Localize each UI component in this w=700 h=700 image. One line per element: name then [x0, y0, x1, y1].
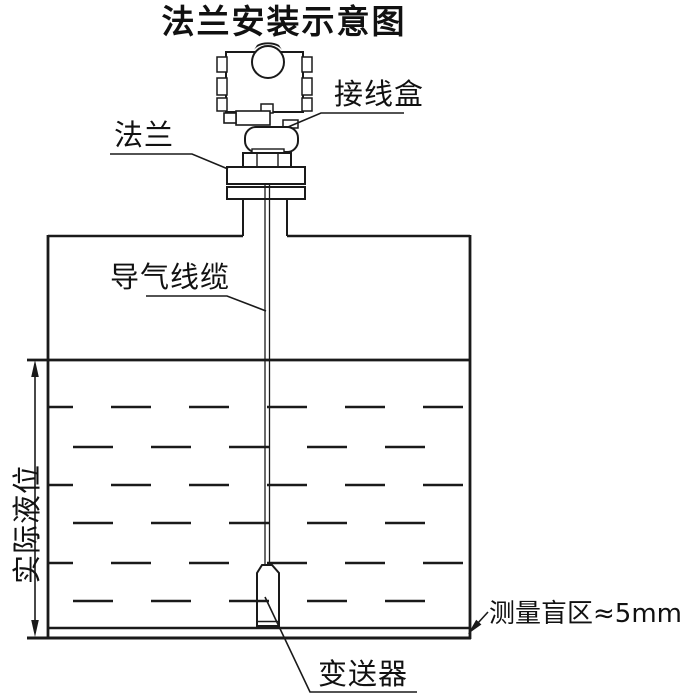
housing-rib-icon: [217, 78, 227, 95]
liquid: [27, 360, 470, 601]
suspension-cable: [265, 184, 270, 565]
housing-dome: [252, 46, 284, 78]
tank-outline: [27, 235, 471, 639]
flange-backing-ring: [227, 187, 305, 199]
flange-plate: [227, 167, 305, 184]
diagram-canvas: 法兰安装示意图 接线盒 法兰 导气线缆 实际液位 测量盲区≈5mm 变送器: [0, 0, 700, 700]
flange-label: 法兰: [114, 120, 174, 150]
coupling: [245, 127, 298, 152]
air-cable-leader: [146, 296, 266, 311]
probe-body: [257, 565, 279, 626]
junction-box-leader: [288, 113, 404, 127]
housing-rib-icon: [302, 78, 312, 95]
housing-rib-icon: [302, 57, 312, 72]
blind-zone-label: 测量盲区≈5mm: [489, 601, 682, 628]
arrowhead-up-icon: [31, 360, 39, 377]
air-cable-label: 导气线缆: [110, 262, 230, 292]
page-title: 法兰安装示意图: [162, 5, 407, 40]
housing-rib-icon: [217, 57, 227, 72]
transmitter-label: 变送器: [318, 659, 408, 689]
junction-box-label: 接线盒: [334, 79, 424, 109]
transmitter-probe: [257, 565, 279, 626]
housing-rib-icon: [302, 98, 312, 111]
conduit-block: [236, 111, 270, 125]
housing-rib-icon: [217, 98, 227, 111]
arrowhead-down-icon: [31, 620, 39, 637]
conduit-end: [224, 113, 236, 123]
transmitter-head: [217, 42, 312, 169]
liquid-dash-rows: [48, 407, 470, 601]
flange-assembly: [227, 167, 305, 199]
actual-level-label: 实际液位: [12, 464, 42, 584]
flange-leader: [110, 154, 228, 169]
